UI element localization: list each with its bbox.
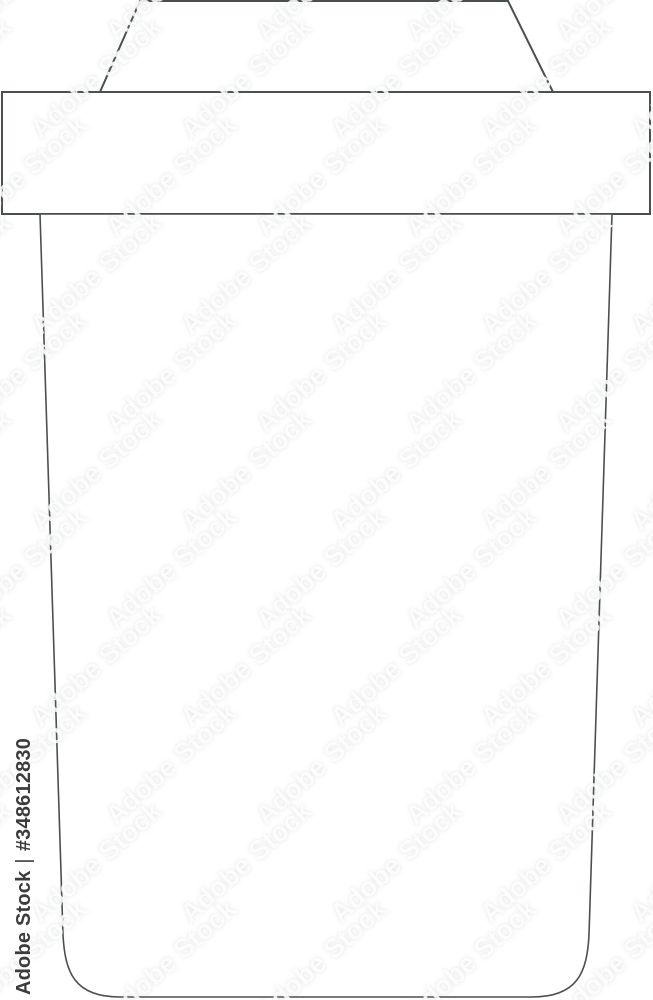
coffee-cup-illustration xyxy=(0,0,653,1000)
cup-lid-top xyxy=(100,1,553,92)
cup-lid-band xyxy=(2,92,650,214)
stock-attribution: Adobe Stock | #348612830 xyxy=(13,738,36,995)
attribution-separator: | xyxy=(13,858,36,863)
attribution-brand: Adobe Stock xyxy=(13,871,36,995)
logo-circle xyxy=(166,447,484,765)
stock-image-canvas: Adobe StockAdobe StockAdobe StockAdobe S… xyxy=(0,0,653,1000)
attribution-asset-id: #348612830 xyxy=(13,738,36,851)
